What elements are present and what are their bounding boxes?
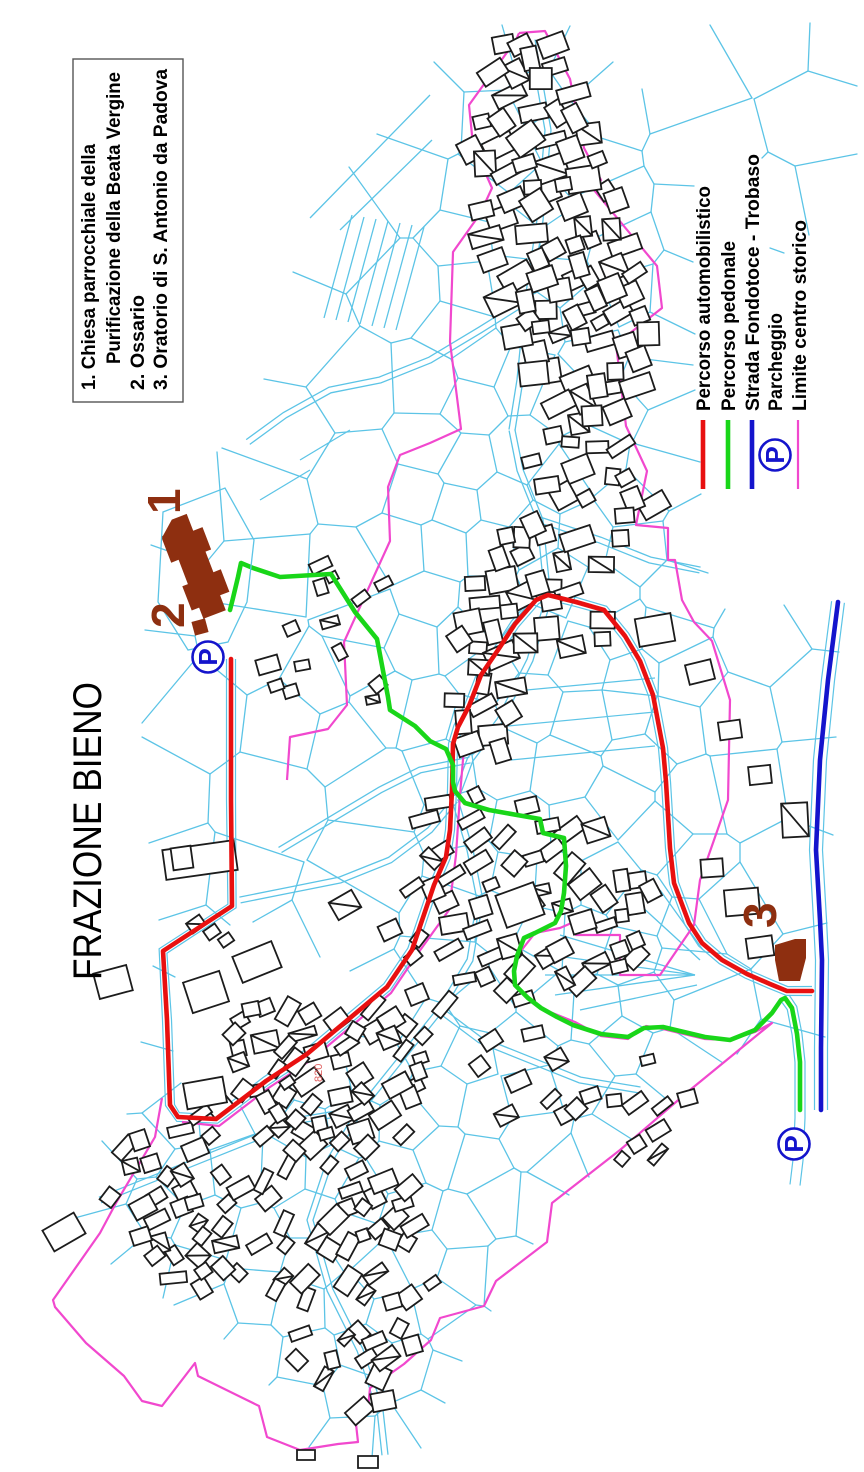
svg-text:P: P bbox=[760, 446, 790, 463]
svg-text:Parcheggio: Parcheggio bbox=[766, 313, 787, 411]
svg-text:3. Oratorio di S. Antonio da: 3. Oratorio di S. Antonio da Padova bbox=[151, 69, 172, 390]
svg-text:1: 1 bbox=[138, 488, 190, 514]
svg-text:2. Ossario: 2. Ossario bbox=[128, 295, 149, 390]
svg-text:Purificazione della Beata Verg: Purificazione della Beata Vergine bbox=[104, 72, 125, 364]
svg-text:Limite centro storico: Limite centro storico bbox=[790, 220, 811, 411]
svg-text:P: P bbox=[193, 648, 223, 665]
svg-text:1. Chiesa parrocchiale della: 1. Chiesa parrocchiale della bbox=[79, 144, 100, 390]
svg-text:P: P bbox=[779, 1135, 809, 1152]
svg-text:Percorso pedonale: Percorso pedonale bbox=[719, 241, 740, 411]
svg-text:Percorso automobilistico: Percorso automobilistico bbox=[694, 186, 715, 411]
svg-text:3: 3 bbox=[734, 902, 786, 928]
svg-text:2: 2 bbox=[142, 602, 194, 628]
svg-text:Strada Fondotoce - Trobaso: Strada Fondotoce - Trobaso bbox=[743, 154, 764, 411]
svg-text:820: 820 bbox=[313, 1064, 325, 1082]
svg-text:FRAZIONE BIENO: FRAZIONE BIENO bbox=[66, 682, 110, 980]
